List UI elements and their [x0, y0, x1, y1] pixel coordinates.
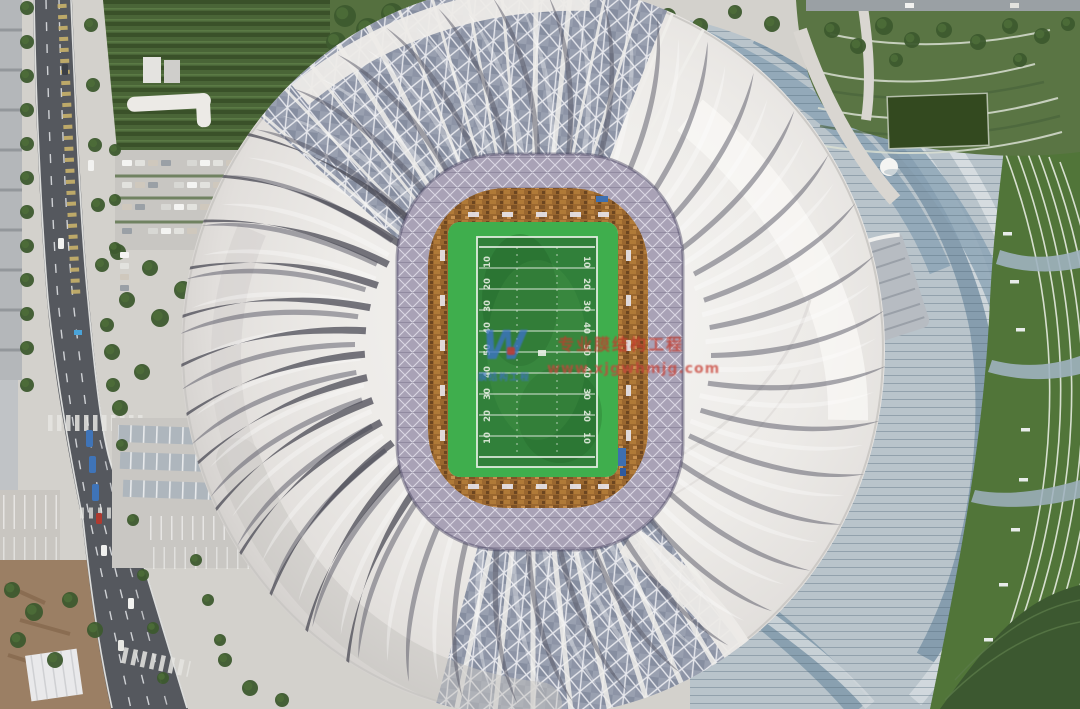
blue-road-sign	[74, 330, 82, 335]
yard-number: 40	[581, 366, 591, 378]
yard-number: 50	[581, 344, 591, 356]
yard-number: 40	[483, 366, 493, 378]
yard-number: 20	[581, 410, 591, 422]
field-equipment	[538, 350, 546, 356]
yard-number: 10	[483, 256, 493, 268]
scene-canvas: 10 20 30 40 50 40 30 20 10 10 20 30 40 5…	[0, 0, 1080, 709]
yard-number: 20	[483, 410, 493, 422]
dark-lawn-rect	[887, 93, 989, 148]
aerial-stadium-photo: 10 20 30 40 50 40 30 20 10 10 20 30 40 5…	[0, 0, 1080, 709]
pitch: 10 20 30 40 50 40 30 20 10 10 20 30 40 5…	[448, 222, 618, 477]
yard-number: 40	[483, 322, 493, 334]
bus	[89, 456, 96, 473]
yard-number: 30	[581, 300, 591, 312]
bus	[86, 430, 93, 447]
yard-number: 50	[483, 344, 493, 356]
yard-number: 10	[581, 432, 591, 444]
yard-number: 40	[581, 322, 591, 334]
yard-number: 20	[483, 278, 493, 290]
yard-number: 30	[483, 388, 493, 400]
top-road	[806, 0, 1080, 11]
bus	[92, 484, 99, 501]
yard-number: 10	[483, 432, 493, 444]
yard-number: 20	[581, 278, 591, 290]
yard-number: 30	[581, 388, 591, 400]
yard-number: 10	[581, 256, 591, 268]
blue-equipment	[618, 448, 626, 466]
small-building	[143, 57, 161, 83]
yard-number: 30	[483, 300, 493, 312]
